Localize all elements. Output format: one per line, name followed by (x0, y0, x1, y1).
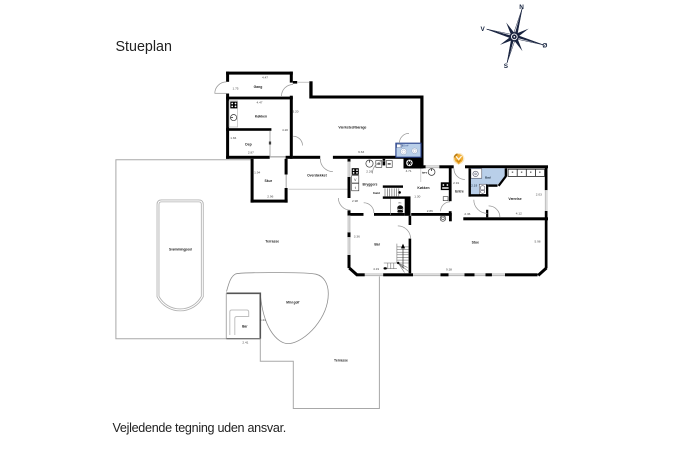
svg-text:S: S (504, 63, 509, 70)
svg-text:2.96: 2.96 (267, 195, 273, 199)
svg-text:4.19: 4.19 (373, 267, 379, 271)
svg-text:1.94: 1.94 (254, 170, 260, 174)
svg-text:3.20: 3.20 (292, 109, 298, 113)
svg-text:Værksted/Garage: Værksted/Garage (338, 125, 366, 129)
svg-text:2.03: 2.03 (536, 192, 542, 196)
svg-text:2.87: 2.87 (248, 150, 254, 154)
svg-text:1.30: 1.30 (414, 195, 420, 199)
svg-text:2.41: 2.41 (242, 340, 248, 344)
svg-text:3.36: 3.36 (354, 234, 360, 238)
svg-text:V: V (480, 26, 485, 33)
svg-text:2.98: 2.98 (352, 199, 358, 203)
svg-text:4.71: 4.71 (406, 169, 412, 173)
svg-text:1.84: 1.84 (230, 136, 236, 140)
svg-text:Stue: Stue (472, 240, 479, 244)
svg-text:5.98: 5.98 (534, 239, 540, 243)
svg-text:Kæld: Kæld (373, 191, 380, 195)
svg-text:4.20: 4.20 (282, 128, 288, 132)
svg-text:Terrasse: Terrasse (334, 359, 348, 363)
svg-text:Værelse: Værelse (508, 197, 521, 201)
svg-text:Bar: Bar (374, 242, 380, 246)
svg-text:2.86: 2.86 (427, 209, 433, 213)
svg-text:Dep: Dep (245, 142, 251, 146)
svg-text:tørv: tørv (422, 170, 428, 174)
svg-text:2.26: 2.26 (366, 169, 372, 173)
svg-text:4.12: 4.12 (516, 211, 522, 215)
svg-text:9.63: 9.63 (358, 150, 364, 154)
svg-text:4.47: 4.47 (262, 75, 268, 79)
svg-text:9.38: 9.38 (446, 267, 452, 271)
svg-text:Ø: Ø (542, 42, 547, 49)
svg-text:Køkken: Køkken (255, 115, 267, 119)
svg-text:2.91: 2.91 (453, 181, 459, 185)
svg-text:Gang: Gang (254, 85, 263, 89)
svg-text:Entre: Entre (455, 190, 464, 194)
svg-text:Svømmingpool: Svømmingpool (169, 248, 192, 252)
svg-text:N: N (519, 4, 524, 11)
svg-text:3.41: 3.41 (260, 318, 266, 322)
svg-text:2.36: 2.36 (464, 212, 470, 216)
svg-text:Terrasse: Terrasse (265, 240, 279, 244)
svg-text:Bad: Bad (485, 176, 491, 180)
svg-text:Overdækket: Overdækket (307, 173, 327, 177)
svg-text:Køkken: Køkken (417, 186, 429, 190)
svg-text:Mini golf: Mini golf (286, 300, 300, 304)
svg-text:Bar: Bar (242, 325, 248, 329)
svg-text:Skur: Skur (265, 179, 273, 183)
svg-text:t: t (355, 186, 356, 190)
svg-text:2.19: 2.19 (471, 183, 477, 187)
svg-text:1.80 m²: 1.80 m² (400, 144, 409, 148)
svg-text:1.75: 1.75 (232, 87, 238, 91)
svg-text:Bryggers: Bryggers (363, 183, 378, 187)
svg-text:4.47: 4.47 (256, 100, 262, 104)
